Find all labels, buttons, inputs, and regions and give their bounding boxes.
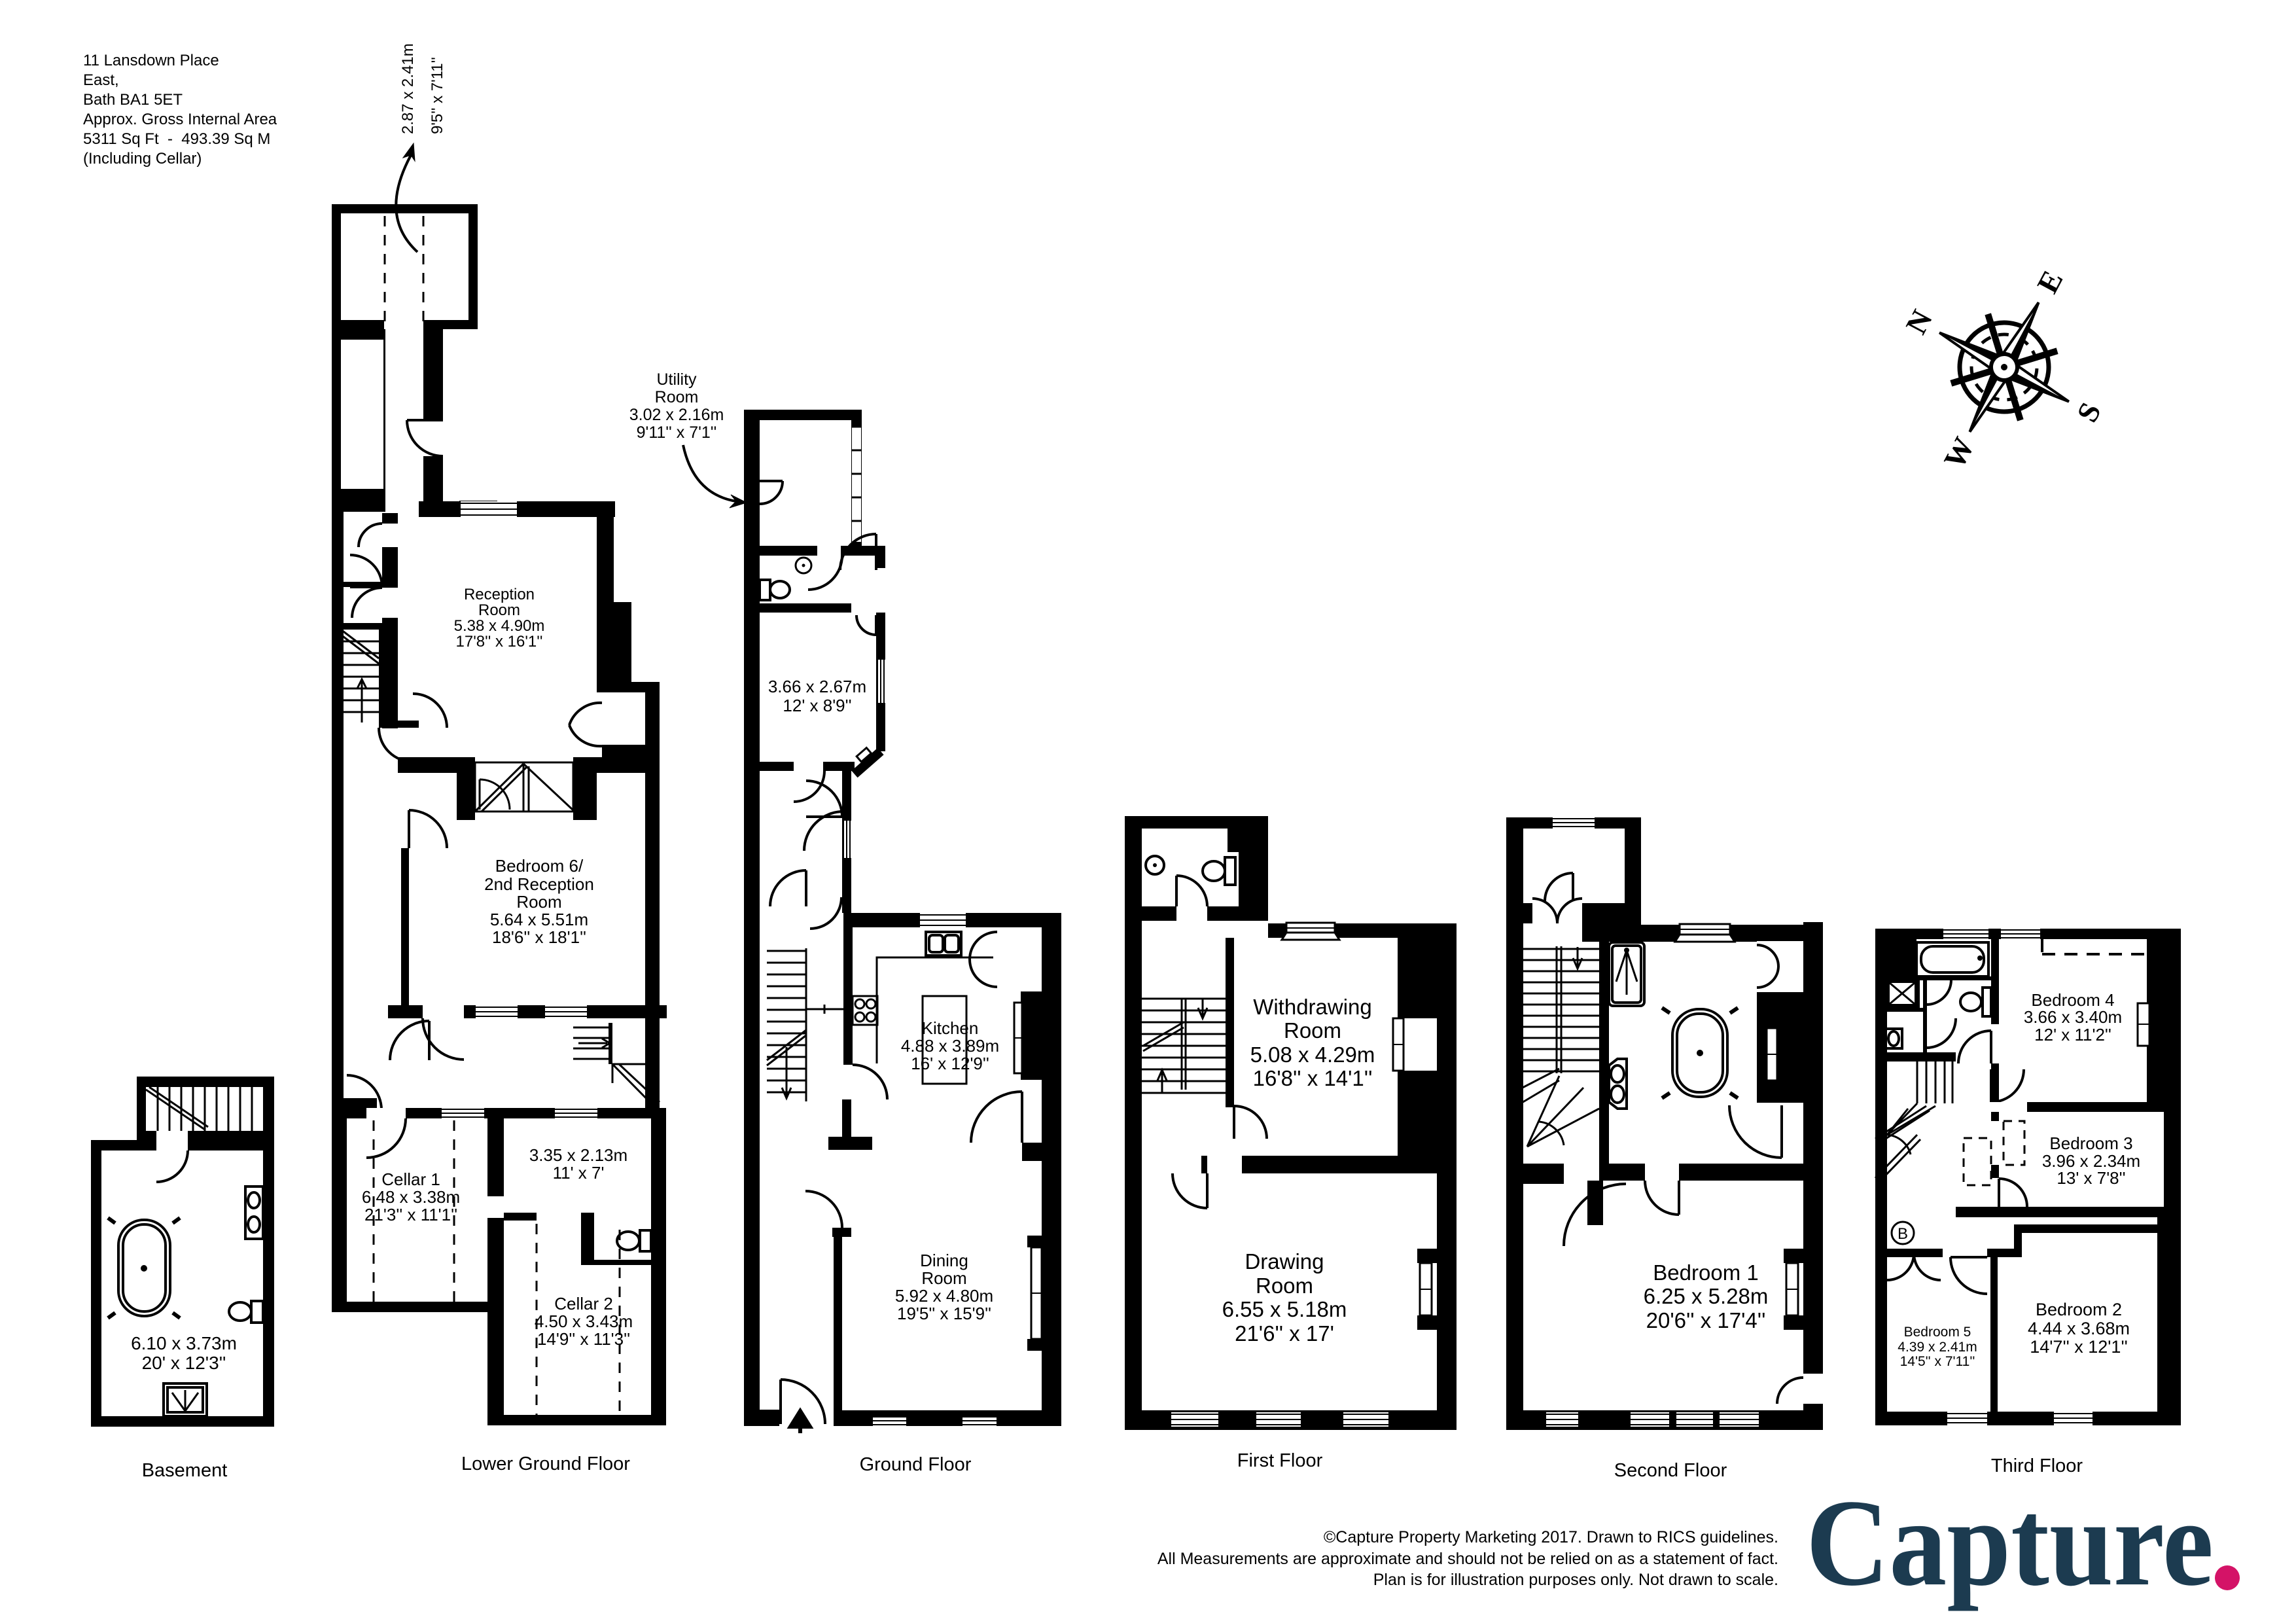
svg-text:©Capture Property Marketing 20: ©Capture Property Marketing 2017. Drawn … (1324, 1528, 1778, 1546)
svg-text:3.66 x 2.67m: 3.66 x 2.67m (768, 677, 866, 696)
svg-text:Bedroom 5: Bedroom 5 (1904, 1325, 1971, 1340)
svg-text:Room: Room (516, 892, 561, 912)
svg-text:Bedroom 3: Bedroom 3 (2049, 1133, 2132, 1153)
svg-text:17'8'' x 16'1'': 17'8'' x 16'1'' (456, 633, 543, 651)
svg-text:4.39 x 2.41m: 4.39 x 2.41m (1898, 1340, 1977, 1355)
svg-text:Approx. Gross Internal Area: Approx. Gross Internal Area (83, 111, 277, 128)
svg-text:9'5'' x 7'11'': 9'5'' x 7'11'' (429, 57, 446, 134)
svg-text:5.92 x 4.80m: 5.92 x 4.80m (895, 1286, 993, 1306)
svg-text:Bath BA1 5ET: Bath BA1 5ET (83, 91, 183, 109)
svg-text:6.25 x 5.28m: 6.25 x 5.28m (1644, 1284, 1769, 1308)
svg-text:4.88 x 3.89m: 4.88 x 3.89m (901, 1036, 999, 1056)
svg-text:First Floor: First Floor (1237, 1450, 1323, 1471)
svg-text:Dining: Dining (920, 1251, 968, 1270)
svg-text:6.55 x 5.18m: 6.55 x 5.18m (1222, 1297, 1347, 1321)
svg-text:20' x 12'3'': 20' x 12'3'' (142, 1353, 226, 1373)
svg-text:18'6'' x 18'1'': 18'6'' x 18'1'' (492, 927, 586, 947)
svg-text:14'9'' x 11'3'': 14'9'' x 11'3'' (537, 1329, 630, 1349)
svg-text:21'6'' x 17': 21'6'' x 17' (1235, 1321, 1334, 1346)
svg-text:11 Lansdown Place: 11 Lansdown Place (83, 52, 219, 69)
svg-text:6.10 x 3.73m: 6.10 x 3.73m (131, 1333, 237, 1353)
svg-text:Utility: Utility (656, 370, 697, 389)
svg-text:Basement: Basement (142, 1460, 228, 1481)
svg-text:Third Floor: Third Floor (1991, 1455, 2083, 1476)
svg-text:Room: Room (921, 1268, 966, 1288)
svg-text:Bedroom 6/: Bedroom 6/ (495, 856, 584, 876)
svg-text:Ground Floor: Ground Floor (860, 1454, 972, 1475)
svg-text:3.02 x 2.16m: 3.02 x 2.16m (629, 406, 724, 424)
svg-text:Drawing: Drawing (1245, 1249, 1324, 1274)
svg-text:Second Floor: Second Floor (1614, 1460, 1727, 1481)
svg-text:5311 Sq Ft - 493.39 Sq M: 5311 Sq Ft - 493.39 Sq M (83, 130, 270, 148)
svg-text:Room: Room (1256, 1274, 1313, 1298)
svg-text:14'5'' x 7'11'': 14'5'' x 7'11'' (1900, 1354, 1975, 1369)
svg-text:3.66 x 3.40m: 3.66 x 3.40m (2024, 1007, 2122, 1027)
svg-text:Reception: Reception (464, 586, 535, 603)
svg-text:16'8'' x 14'1'': 16'8'' x 14'1'' (1253, 1066, 1373, 1090)
svg-text:2nd Reception: 2nd Reception (484, 874, 594, 894)
svg-text:4.44 x 3.68m: 4.44 x 3.68m (2028, 1319, 2130, 1338)
svg-text:9'11'' x 7'1'': 9'11'' x 7'1'' (637, 423, 717, 442)
svg-text:B: B (1898, 1225, 1908, 1243)
svg-text:Bedroom 2: Bedroom 2 (2036, 1300, 2122, 1319)
svg-text:12' x 11'2'': 12' x 11'2'' (2034, 1025, 2111, 1044)
svg-text:Withdrawing: Withdrawing (1253, 995, 1372, 1019)
svg-text:Cellar 1: Cellar 1 (381, 1169, 440, 1189)
svg-text:13' x 7'8'': 13' x 7'8'' (2057, 1168, 2125, 1188)
svg-text:5.38 x 4.90m: 5.38 x 4.90m (454, 617, 545, 635)
svg-text:Room: Room (1284, 1018, 1341, 1043)
svg-text:5.64 x 5.51m: 5.64 x 5.51m (490, 910, 588, 929)
svg-text:4.50 x 3.43m: 4.50 x 3.43m (535, 1311, 633, 1331)
svg-text:6.48 x 3.38m: 6.48 x 3.38m (362, 1187, 460, 1207)
svg-text:Bedroom 1: Bedroom 1 (1653, 1260, 1758, 1285)
svg-text:21'3'' x 11'1'': 21'3'' x 11'1'' (364, 1205, 457, 1224)
svg-text:11' x 7': 11' x 7' (553, 1163, 605, 1183)
svg-text:12' x 8'9'': 12' x 8'9'' (783, 696, 851, 715)
svg-text:Plan is for illustration purpo: Plan is for illustration purposes only. … (1373, 1571, 1778, 1589)
svg-text:Cellar 2: Cellar 2 (554, 1294, 613, 1313)
svg-text:Capture: Capture (1806, 1474, 2214, 1612)
svg-text:20'6'' x 17'4'': 20'6'' x 17'4'' (1646, 1308, 1766, 1332)
svg-text:2.87 x 2.41m: 2.87 x 2.41m (399, 43, 417, 134)
svg-text:All Measurements are approxima: All Measurements are approximate and sho… (1157, 1550, 1778, 1568)
svg-text:(Including Cellar): (Including Cellar) (83, 150, 202, 168)
svg-text:Kitchen: Kitchen (922, 1018, 979, 1038)
svg-text:Room: Room (655, 388, 699, 406)
svg-text:19'5'' x 15'9'': 19'5'' x 15'9'' (897, 1304, 991, 1323)
svg-text:Room: Room (478, 601, 520, 619)
svg-text:16' x 12'9'': 16' x 12'9'' (911, 1054, 989, 1073)
svg-text:East,: East, (83, 71, 119, 89)
svg-text:5.08 x 4.29m: 5.08 x 4.29m (1250, 1043, 1375, 1067)
svg-text:Lower Ground Floor: Lower Ground Floor (461, 1454, 630, 1474)
svg-text:14'7'' x 12'1'': 14'7'' x 12'1'' (2030, 1337, 2128, 1357)
svg-text:3.35 x 2.13m: 3.35 x 2.13m (529, 1145, 627, 1165)
